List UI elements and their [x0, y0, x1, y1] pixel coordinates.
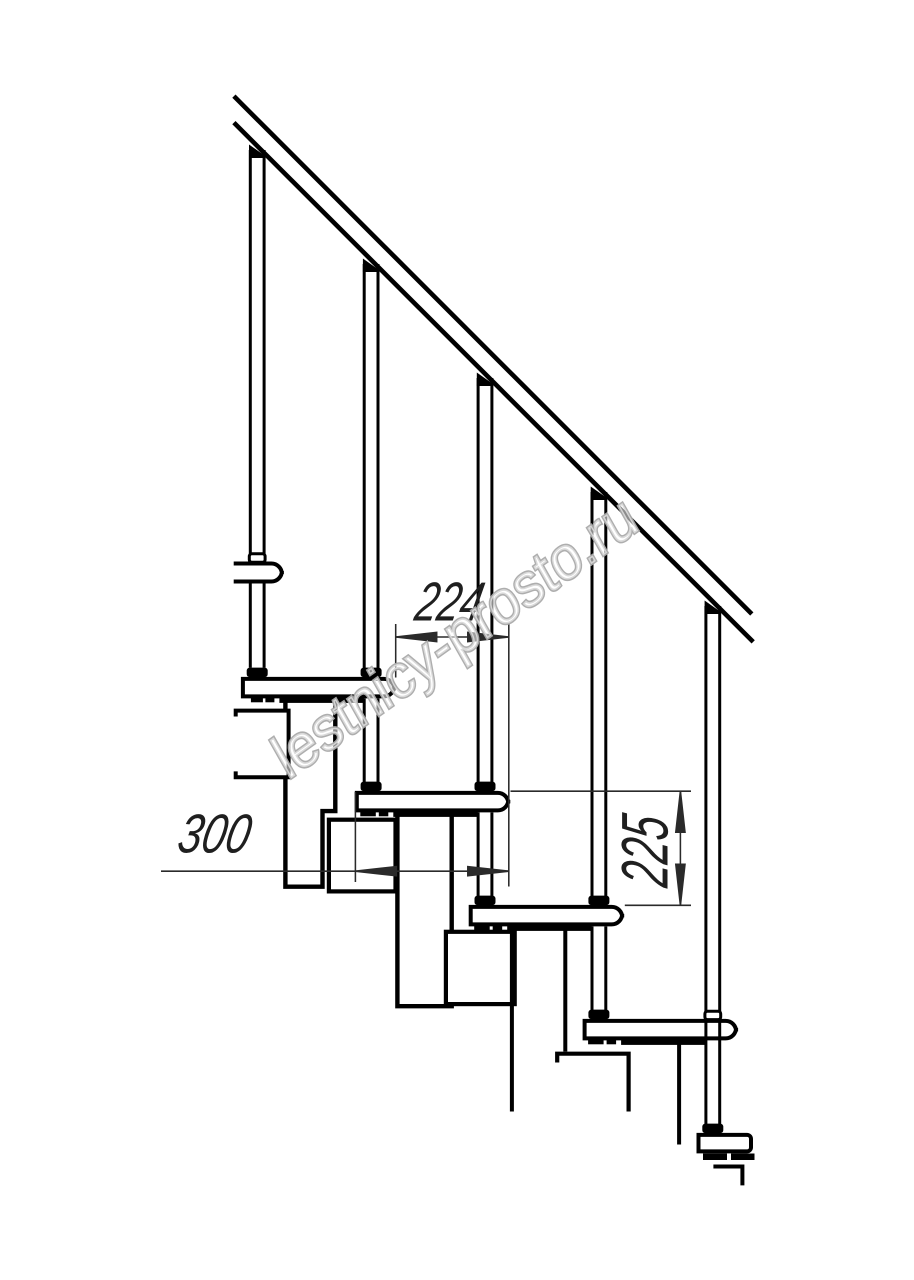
- svg-text:225: 225: [609, 810, 683, 892]
- svg-text:300: 300: [173, 803, 257, 864]
